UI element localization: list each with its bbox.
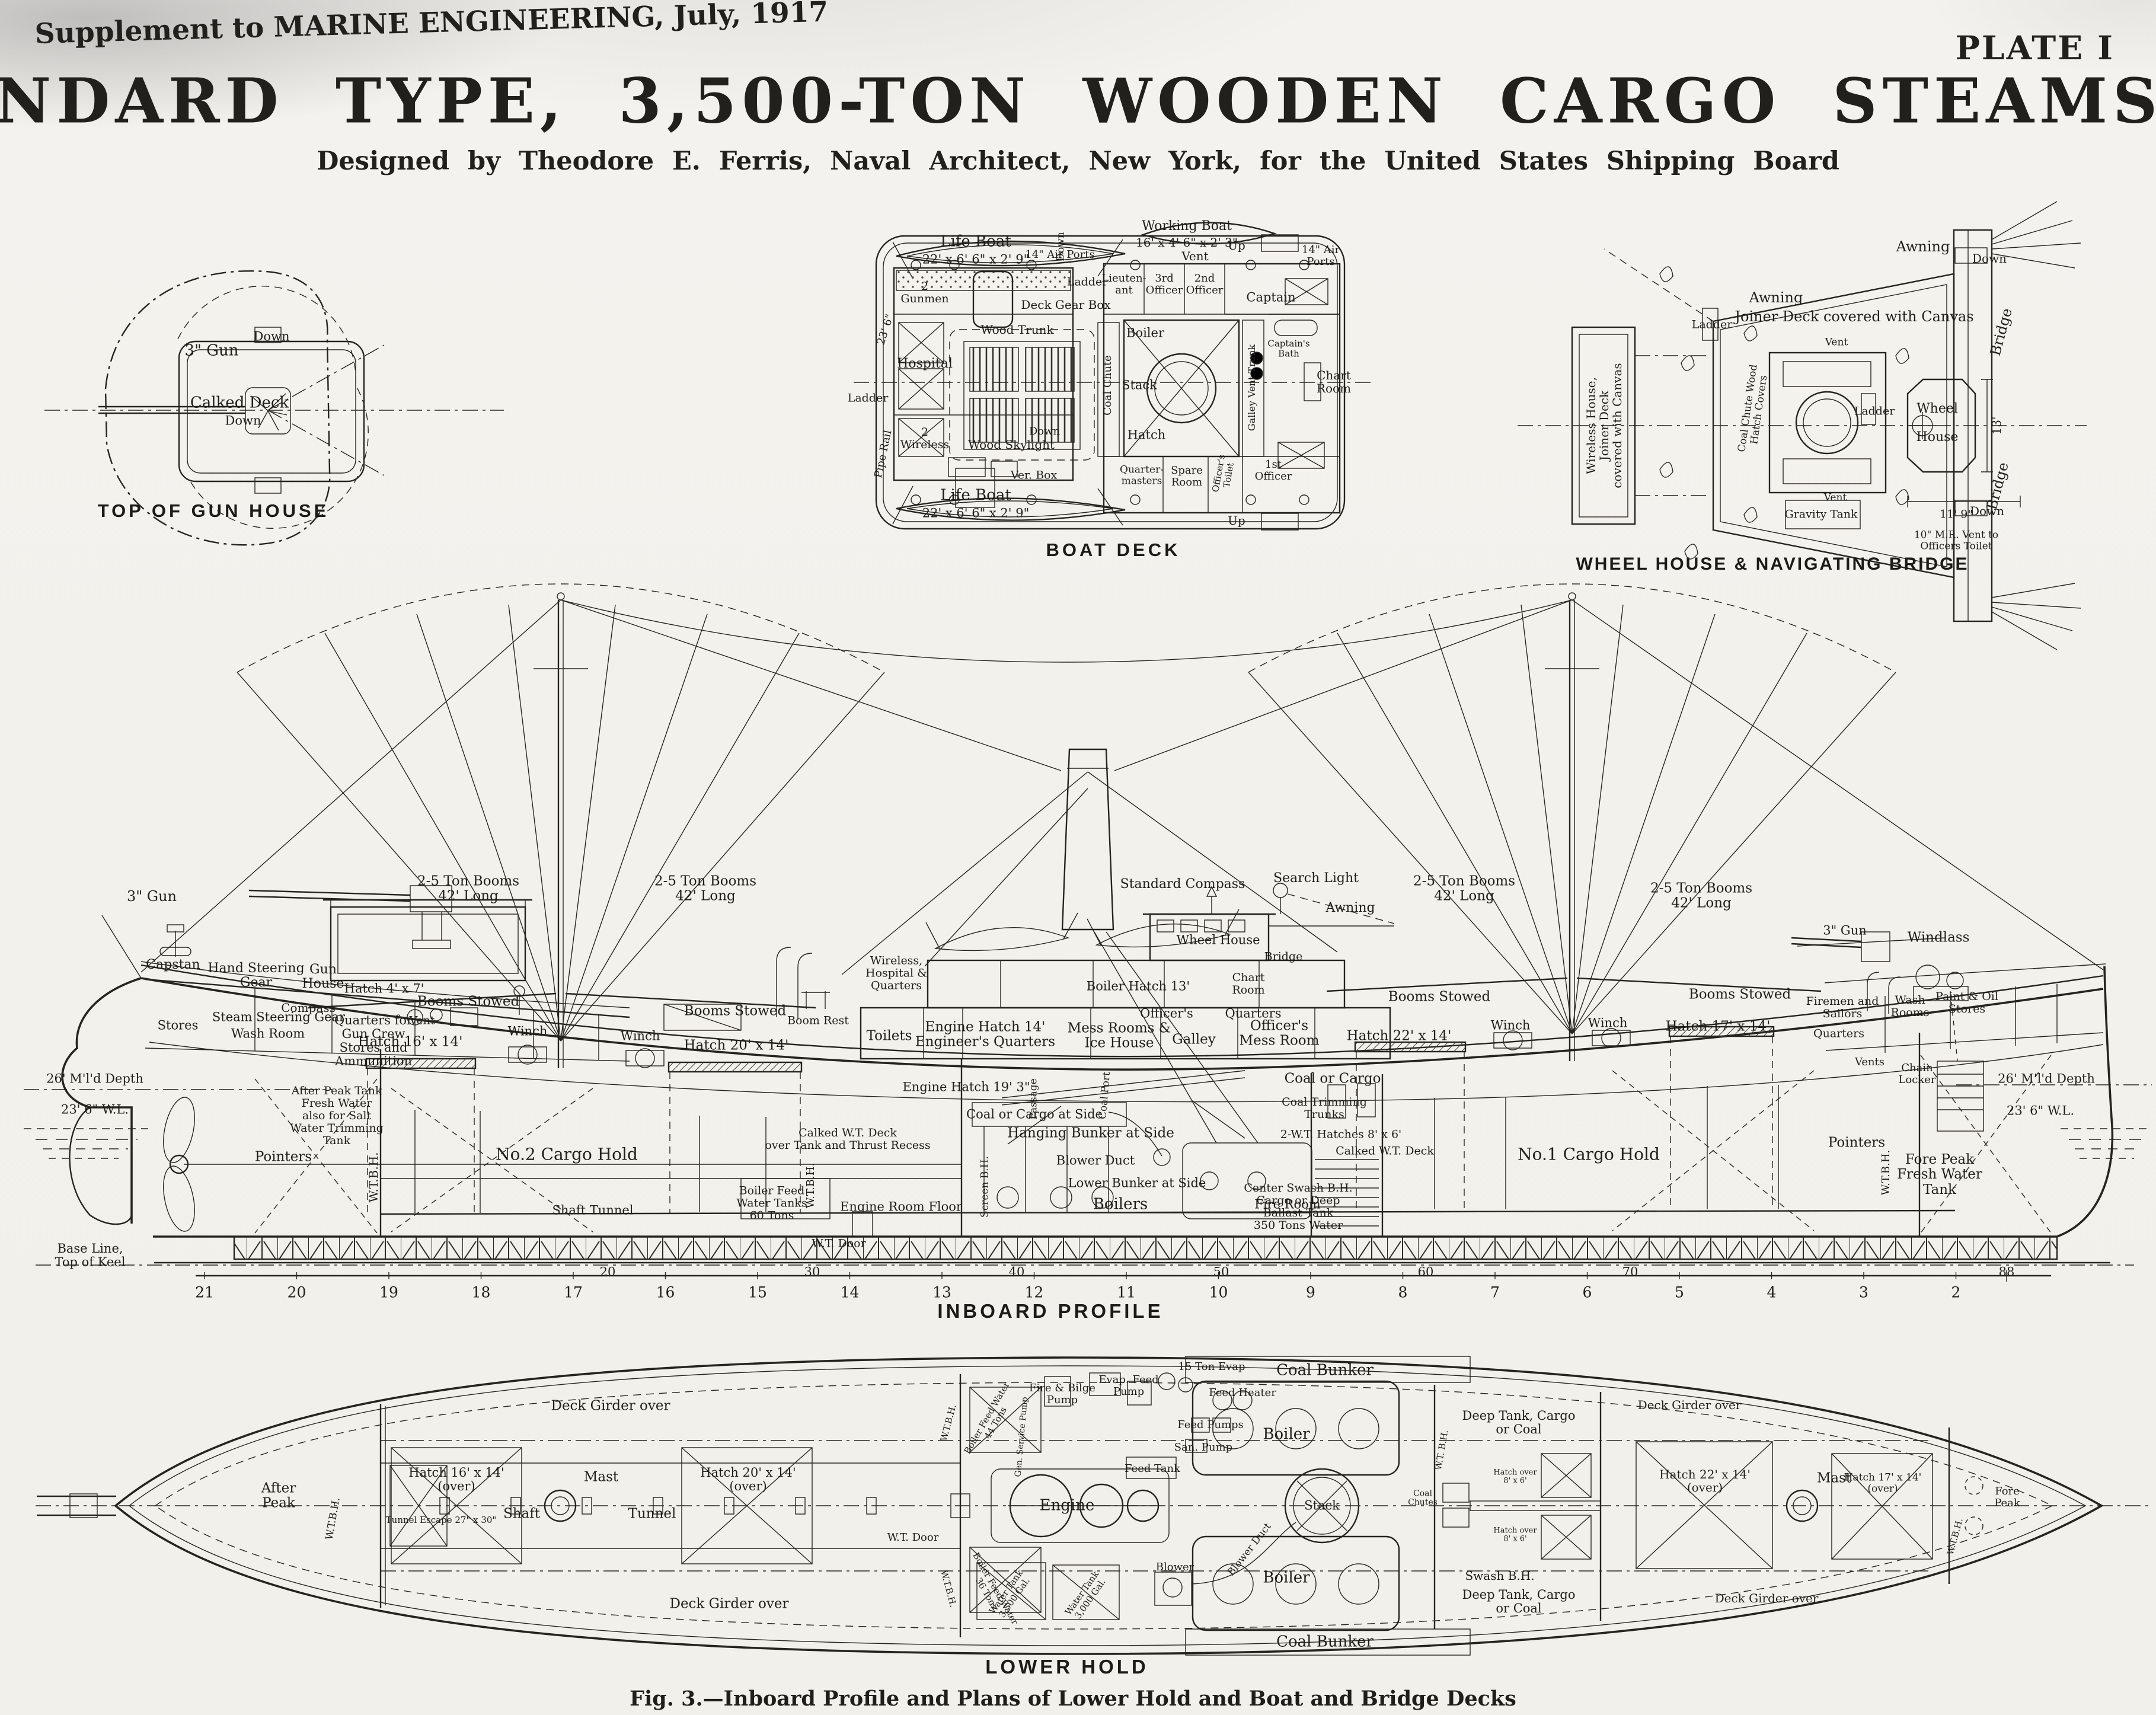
funnel	[1062, 749, 1113, 930]
caption-wheel-house: WHEEL HOUSE & NAVIGATING BRIDGE	[1576, 554, 1969, 574]
figure-caption: Fig. 3.—Inboard Profile and Plans of Low…	[630, 1688, 1516, 1711]
wheel-house-profile	[1150, 914, 1269, 960]
capstan	[160, 925, 191, 957]
boat-deck-plan	[854, 222, 1375, 530]
stern-gun	[249, 886, 452, 948]
aft-derrick-booms	[237, 605, 884, 1041]
caption-lower-hold: LOWER HOLD	[985, 1656, 1148, 1678]
caption-gun-house: TOP OF GUN HOUSE	[98, 500, 330, 522]
engine-plan	[991, 1469, 1169, 1542]
aft-mast	[534, 593, 588, 1068]
caption-inboard-profile: INBOARD PROFILE	[937, 1300, 1163, 1323]
plate-sheet: Supplement to MARINE ENGINEERING, July, …	[0, 0, 2156, 1715]
rudder	[69, 1107, 132, 1224]
fore-mast	[1545, 593, 1599, 1061]
bow-gun	[1791, 932, 1946, 962]
search-light-glyph	[1273, 883, 1288, 898]
caption-boat-deck: BOAT DECK	[1046, 539, 1181, 561]
stowed-booms	[308, 978, 1821, 1008]
lower-hold-plan	[36, 1356, 2152, 1655]
wheel-house-plan	[1518, 202, 2087, 650]
stem	[2057, 966, 2112, 1237]
inboard-profile-drawing	[24, 584, 2152, 1282]
ship-plans-drawing	[0, 0, 2156, 1715]
